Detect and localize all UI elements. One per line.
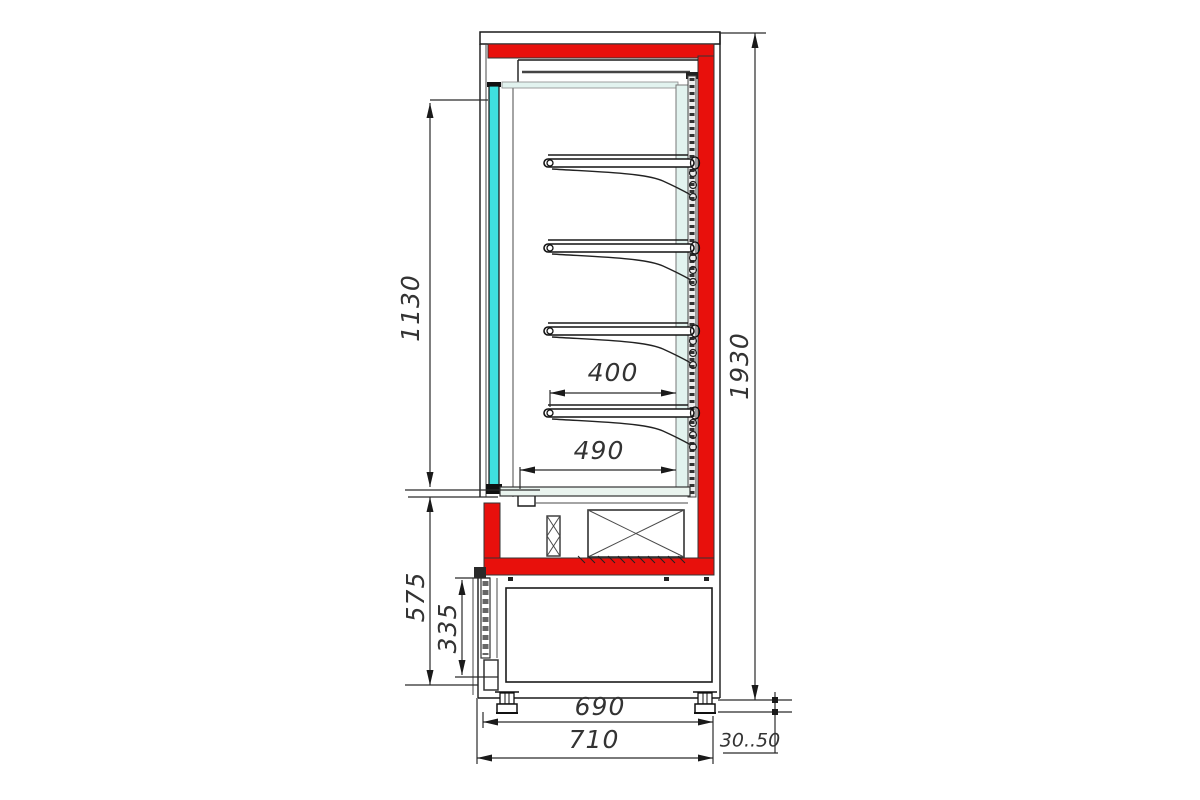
top-outer-band xyxy=(480,32,720,44)
rear-air-panel xyxy=(676,85,688,490)
red-bottom-band xyxy=(484,558,714,575)
glass-door xyxy=(486,82,502,494)
front-grille xyxy=(473,567,498,695)
dim-label-grille-height: 335 xyxy=(433,603,462,654)
dim-label-shelf-depth: 400 xyxy=(588,358,639,387)
canopy-light-band xyxy=(502,82,678,88)
machine-compartment xyxy=(547,510,685,563)
technical-drawing-canvas: 1130 575 335 1930 400 490 690 xyxy=(0,0,1200,800)
dim-label-deck-depth: 490 xyxy=(574,436,625,465)
handle-block xyxy=(484,660,498,690)
adjustable-foot-rear xyxy=(693,692,717,713)
dim-label-overall-height: 1930 xyxy=(725,332,754,400)
dim-label-lower-height: 575 xyxy=(401,572,430,623)
dim-label-glass-height: 1130 xyxy=(396,274,425,342)
technical-drawing: 1130 575 335 1930 400 490 690 xyxy=(0,0,1200,800)
adjustable-foot-front xyxy=(495,692,519,713)
canopy xyxy=(502,60,698,88)
dim-label-leg-range: 30..50 xyxy=(720,730,780,752)
base-front-panel xyxy=(506,588,712,682)
rear-panel xyxy=(676,76,696,497)
dim-shelf-depth: 400 xyxy=(550,358,676,407)
glass-pane xyxy=(489,86,499,486)
dim-label-overall-depth: 710 xyxy=(569,725,620,754)
red-back-band xyxy=(698,56,714,575)
red-top-band xyxy=(488,44,714,58)
deck-surface xyxy=(500,487,690,496)
dim-glass-door-height: 1130 xyxy=(396,100,540,490)
dim-label-base-width: 690 xyxy=(575,692,626,721)
dim-overall-height: 1930 xyxy=(720,33,766,700)
dim-deck-depth: 490 xyxy=(520,436,676,489)
fan-unit xyxy=(547,516,560,556)
dim-leg-adjust-range: 30..50 xyxy=(718,692,792,753)
hinge-block xyxy=(474,567,486,578)
